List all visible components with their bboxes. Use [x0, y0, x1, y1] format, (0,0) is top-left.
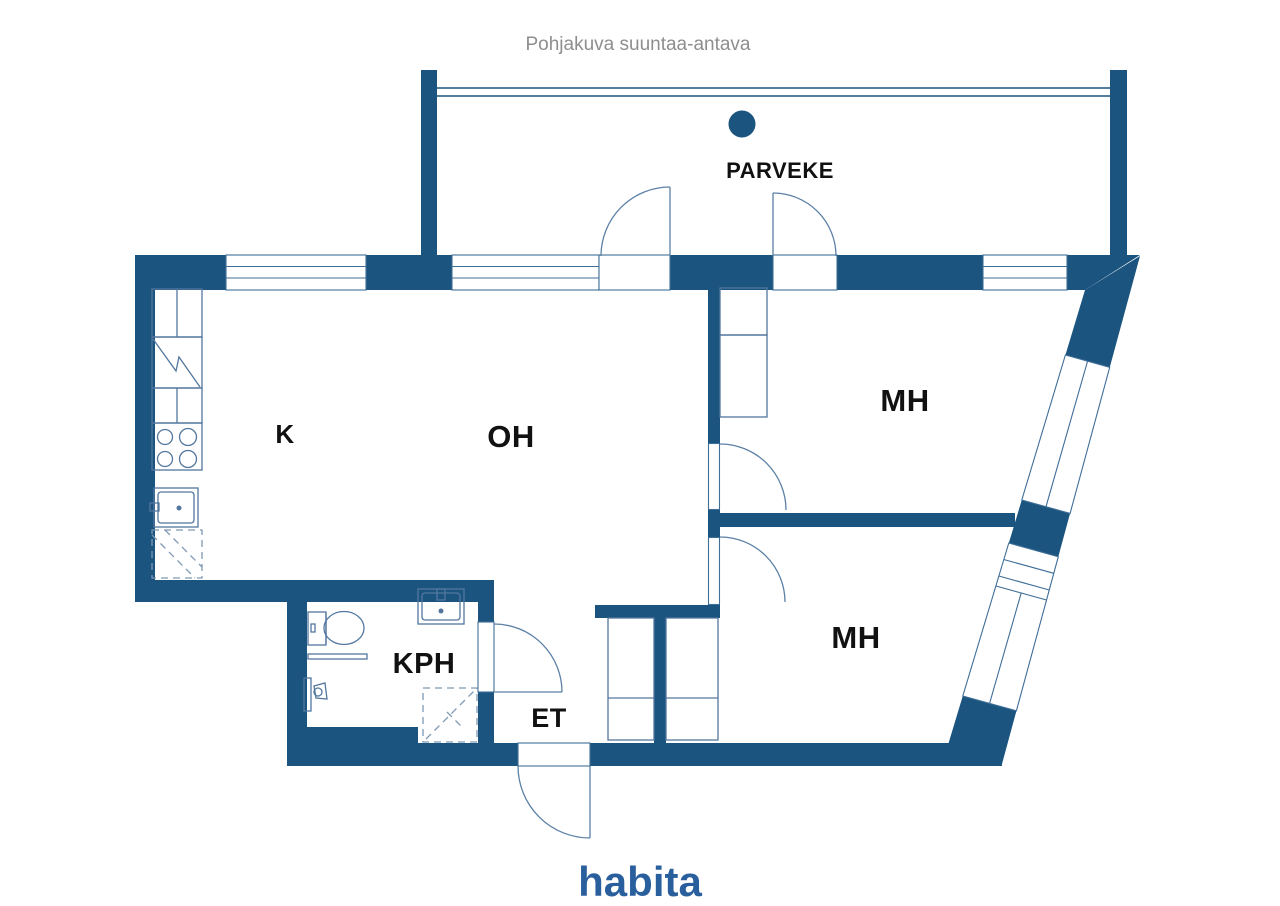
dishwasher-reservation [152, 530, 202, 578]
bedroom-diagonal-window-upper [1022, 355, 1110, 513]
balcony-door-right [773, 193, 837, 290]
bedroom-wardrobe [720, 288, 767, 417]
living-room-window [452, 255, 599, 290]
towel-rail [308, 654, 367, 659]
kitchen-sink [150, 488, 198, 527]
bedroom-top-window [983, 255, 1067, 290]
plan-title: Pohjakuva suuntaa-antava [526, 34, 751, 55]
kitchen-cabinet-top [152, 289, 202, 337]
room-label-oh: OH [487, 419, 535, 454]
balcony-left-post [421, 70, 437, 256]
hall-wardrobe-right [666, 618, 718, 740]
bathroom-door [478, 622, 562, 692]
room-label-parveke: PARVEKE [726, 158, 834, 183]
room-label-kph: KPH [393, 648, 456, 680]
bedroom-bottom-door [709, 537, 786, 605]
floorplan-page: Pohjakuva suuntaa-antava [0, 0, 1280, 906]
kitchen-cabinet-mid [152, 388, 202, 423]
kitchen-fixtures [150, 289, 202, 578]
balcony-dot-marker [729, 111, 756, 138]
room-label-mh-bottom: MH [831, 620, 880, 655]
room-label-mh-top: MH [880, 383, 929, 418]
stove [152, 423, 202, 470]
shower-fixture [304, 678, 327, 711]
room-label-et: ET [531, 703, 567, 733]
balcony-door-left [599, 187, 670, 290]
bathroom-ledge-wall [305, 727, 418, 744]
kitchen-bottom-wall [135, 580, 494, 602]
toilet [308, 612, 364, 646]
bedroom-top-door [709, 444, 787, 511]
windows [226, 255, 1110, 711]
wardrobe-wall [654, 618, 666, 744]
bedroom-diagonal-window-lower [963, 543, 1059, 711]
bathroom-left-wall [287, 580, 307, 766]
shower-area [423, 688, 477, 742]
bottom-wall [287, 743, 1002, 766]
habita-logo: habita [578, 858, 702, 905]
kitchen-window [226, 255, 366, 290]
room-label-k: K [275, 419, 294, 449]
floorplan-drawing: Pohjakuva suuntaa-antava [0, 0, 1280, 906]
entrance-door [518, 743, 590, 838]
bedroom-divider-wall [708, 513, 1015, 527]
balcony-right-post [1110, 70, 1127, 256]
refrigerator [152, 337, 202, 388]
hallway-wall [595, 605, 720, 618]
hall-wardrobe-left [608, 618, 654, 740]
